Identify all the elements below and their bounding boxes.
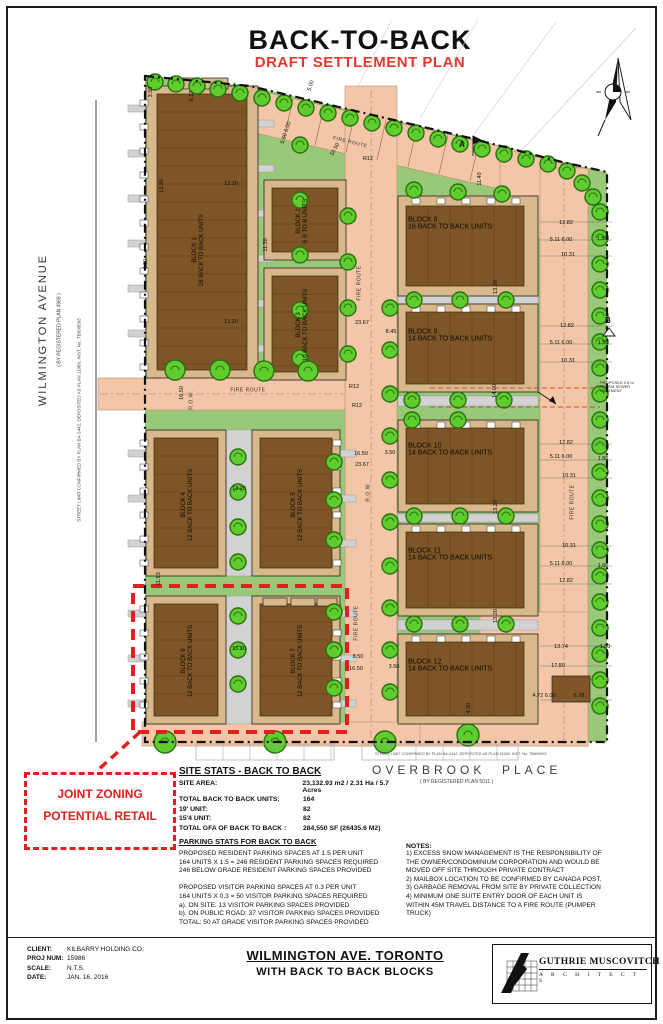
tree-icon <box>340 346 356 362</box>
notes-line: 3) GARBAGE REMOVAL FROM SITE BY PRIVATE … <box>406 884 652 893</box>
dimension-label: 10.31 <box>562 544 576 550</box>
tree-icon <box>230 676 246 692</box>
building-block-9 <box>398 304 538 392</box>
parking-stats-line: PROPOSED VISITOR PARKING SPACES AT 0.3 P… <box>179 884 409 893</box>
tree-icon <box>592 568 608 584</box>
north-arrow-icon <box>596 58 631 136</box>
block-label-7: BLOCK 712 BACK TO BACK UNITS <box>291 625 305 697</box>
architect-firm-sub: A R C H I T E C T S <box>539 972 647 984</box>
tree-icon <box>326 604 342 620</box>
dimension-label: 16.50 <box>349 667 363 673</box>
dimension-label: 11.93 <box>157 572 163 585</box>
tree-icon <box>382 684 398 700</box>
tree-icon <box>452 616 468 632</box>
drawing-sheet: BACK-TO-BACK DRAFT SETTLEMENT PLAN <box>0 0 663 1024</box>
tree-icon <box>452 508 468 524</box>
section-marker-a-label: A <box>459 141 465 149</box>
tree-icon <box>386 120 402 136</box>
dimension-label: 10.31 <box>561 253 575 259</box>
tree-icon <box>592 412 608 428</box>
dimension-label: 3.50 <box>389 665 400 671</box>
tree-icon <box>320 105 336 121</box>
notes-line: TRUCK) <box>406 910 652 919</box>
dimension-label: 13.20 <box>494 609 500 623</box>
tree-icon <box>592 204 608 220</box>
block-label-8: BLOCK 816 BACK TO BACK UNITS <box>408 217 492 232</box>
drawing-title: WILMINGTON AVE. TORONTO WITH BACK TO BAC… <box>200 948 490 978</box>
tree-icon <box>498 292 514 308</box>
dimension-label: 23.67 <box>355 321 369 327</box>
notes-line: 4) MINIMUM ONE SUITE ENTRY DOOR OF EACH … <box>406 893 652 902</box>
parking-stats-line: 164 UNITS X 1.5 = 246 RESIDENT PARKING S… <box>179 859 409 868</box>
dimension-label: 4.00 <box>144 259 150 270</box>
architect-logo-glyph-icon <box>499 951 539 997</box>
tree-icon <box>382 300 398 316</box>
tree-icon <box>406 292 422 308</box>
site-stats-heading: SITE STATS - BACK TO BACK <box>179 766 409 777</box>
dimension-label: R12 <box>363 157 373 163</box>
dimension-label: 12.82 <box>559 441 573 447</box>
tree-icon <box>592 698 608 714</box>
building-block-11 <box>398 524 538 616</box>
dimension-label: 1.50 <box>598 564 609 570</box>
site-stats-panel: SITE STATS - BACK TO BACK SITE AREA:23,1… <box>179 766 409 927</box>
tree-icon <box>382 514 398 530</box>
dimension-label: R12 <box>349 385 359 391</box>
site-stats-row: TOTAL BACK TO BACK UNITS:164 <box>179 796 409 803</box>
building-block-8 <box>398 196 538 296</box>
tree-icon <box>406 182 422 198</box>
parking-stats-line: b). ON PUBLIC ROAD: 37 VISITOR PARKING S… <box>179 910 409 919</box>
parking-stats-line: PROPOSED RESIDENT PARKING SPACES AT 1.5 … <box>179 850 409 859</box>
tree-icon <box>574 175 590 191</box>
tree-icon <box>254 361 274 381</box>
block-label-2: BLOCK 26 B TO B UNITS <box>296 199 310 243</box>
dimension-label: 1.50 <box>598 457 609 463</box>
tree-icon <box>496 146 512 162</box>
tree-icon <box>592 594 608 610</box>
dimension-label: 13.20 <box>494 500 500 514</box>
tree-icon <box>452 292 468 308</box>
dimension-label: 4.72 6.00 <box>533 694 556 700</box>
tree-icon <box>592 490 608 506</box>
tree-icon <box>592 256 608 272</box>
dimension-label: 5.11 6.00 <box>550 455 573 461</box>
tree-icon <box>592 464 608 480</box>
overbrook-plan-ref: ( BY REGISTERED PLAN 5011 ) <box>420 780 493 785</box>
tree-icon <box>592 360 608 376</box>
client-value: KILBARRY HOLDING CO. <box>67 946 144 953</box>
block-label-1: BLOCK 128 BACK TO BACK UNITS <box>192 214 206 286</box>
dimension-label: 4.50 <box>467 703 473 714</box>
tree-icon <box>326 642 342 658</box>
drawing-title-main: WILMINGTON AVE. TORONTO <box>200 948 490 963</box>
street-name-wilmington: WILMINGTON AVENUE <box>38 254 50 406</box>
date-value: JAN. 16, 2016 <box>67 974 108 981</box>
section-marker-b-label: B <box>605 317 611 325</box>
tree-icon <box>430 131 446 147</box>
dimension-label: 1.50 <box>597 237 608 243</box>
dimension-label: 12.82 <box>560 324 574 330</box>
block-label-9: BLOCK 914 BACK TO BACK UNITS <box>408 329 492 344</box>
dimension-label: 1.50 <box>598 341 609 347</box>
fire-route-label: FIRE ROUTE <box>354 605 359 640</box>
title-block-fields: CLIENT: KILBARRY HOLDING CO. PROJ NUM: 1… <box>27 946 144 984</box>
dimension-label: 13.20 <box>224 320 238 326</box>
tree-icon <box>382 342 398 358</box>
block-label-4: BLOCK 412 BACK TO BACK UNITS <box>181 469 195 541</box>
tree-icon <box>382 472 398 488</box>
dimension-label: 5.11 6.00 <box>550 341 573 347</box>
block-label-10: BLOCK 1014 BACK TO BACK UNITS <box>408 443 492 458</box>
dimension-label: 3.50 <box>149 87 155 98</box>
tree-icon <box>404 392 420 408</box>
block-label-12: BLOCK 1214 BACK TO BACK UNITS <box>408 659 492 674</box>
dimension-label: 5.11 6.00 <box>550 562 573 568</box>
tree-icon <box>498 508 514 524</box>
dimension-label: 13.20 <box>494 280 500 294</box>
block-label-5: BLOCK 512 BACK TO BACK UNITS <box>291 469 305 541</box>
architect-logo: GUTHRIE MUSCOVITCH A R C H I T E C T S <box>492 944 652 1004</box>
joint-zoning-callout: JOINT ZONING POTENTIAL RETAIL <box>24 772 176 850</box>
tree-icon <box>230 554 246 570</box>
tree-icon <box>326 454 342 470</box>
tree-icon <box>592 672 608 688</box>
dimension-label: R12 <box>352 404 362 410</box>
tree-icon <box>292 247 308 263</box>
notes-line: WITHIN 45M TRAVEL DISTANCE TO A FIRE ROU… <box>406 902 652 911</box>
tree-icon <box>592 542 608 558</box>
dimension-label: 12.82 <box>559 221 573 227</box>
tree-icon <box>404 412 420 428</box>
dimension-label: 14.00 <box>493 384 499 398</box>
callout-line-1: JOINT ZONING <box>27 787 173 801</box>
notes-heading: NOTES: <box>406 843 652 850</box>
site-stats-row: 15'4 UNIT:82 <box>179 815 409 822</box>
proj-num-label: PROJ NUM: <box>27 955 67 962</box>
parking-stats-line: TOTAL: 50 AT GRADE VISITOR PARKING SPACE… <box>179 919 409 928</box>
tree-icon <box>498 616 514 632</box>
parking-stats-line <box>179 876 409 885</box>
street-name-place: PLACE <box>502 764 561 777</box>
dimension-label: 8.45 <box>386 330 397 336</box>
tree-icon <box>592 516 608 532</box>
proj-num-value: 15986 <box>67 955 85 962</box>
dimension-label: 13.20 <box>232 487 246 493</box>
tree-icon <box>592 438 608 454</box>
tree-icon <box>382 600 398 616</box>
tree-icon <box>326 680 342 696</box>
tree-icon <box>592 620 608 636</box>
dimension-label: 23.67 <box>355 463 369 469</box>
tree-icon <box>518 151 534 167</box>
architect-firm-name: GUTHRIE MUSCOVITCH <box>539 957 647 970</box>
date-label: DATE: <box>27 974 67 981</box>
notes-line: MOVED OFF SITE THROUGH PRIVATE CONTRACT <box>406 867 652 876</box>
fire-route-label: FIRE ROUTE <box>230 388 265 393</box>
tree-icon <box>342 110 358 126</box>
notes-line: 2) MAILBOX LOCATION TO BE CONFIRMED BY C… <box>406 876 652 885</box>
tree-icon <box>276 95 292 111</box>
dimension-label: 11.38 <box>264 238 270 251</box>
drawing-title-sub: WITH BACK TO BACK BLOCKS <box>200 966 490 978</box>
block-label-3: BLOCK 310 BACK TO BACK UNITS <box>296 289 310 361</box>
site-stats-rows: SITE AREA:23,132.93 m2 / 2.31 Ha / 5.7 A… <box>179 780 409 832</box>
tree-icon <box>585 189 601 205</box>
tree-icon <box>165 360 185 380</box>
tree-icon <box>406 508 422 524</box>
tree-icon <box>230 608 246 624</box>
client-label: CLIENT: <box>27 946 67 953</box>
tree-icon <box>450 184 466 200</box>
dimension-label: 1.50 <box>600 645 611 651</box>
parking-stats-line: a). ON SITE: 13 VISITOR PARKING SPACES P… <box>179 902 409 911</box>
tree-icon <box>254 90 270 106</box>
wilmington-street-limit: STREET LIMIT CONFIRMED BY PLAN BA-2442, … <box>78 318 83 521</box>
title-block-divider <box>8 937 655 938</box>
tree-icon <box>450 412 466 428</box>
overbrook-street-limit: STREET LIMIT CONFIRMED BY PLAN BA-2442, … <box>375 752 547 756</box>
dimension-label: 6.78 <box>574 694 585 700</box>
tree-icon <box>340 208 356 224</box>
tree-icon <box>340 254 356 270</box>
dimension-label: 12.82 <box>559 579 573 585</box>
tree-icon <box>382 386 398 402</box>
wilmington-plan-ref: ( BY REGISTERED PLAN 4969 ) <box>57 293 62 367</box>
easement-note: PROPOSED 0.5 m STORM SEWER EASEMENT <box>600 381 634 394</box>
building-block-10 <box>398 420 538 512</box>
callout-line-2: POTENTIAL RETAIL <box>27 809 173 823</box>
fire-route-label: FIRE ROUTE <box>357 265 362 300</box>
notes-panel: NOTES: 1) EXCESS SNOW MANAGEMENT IS THE … <box>406 843 652 919</box>
site-stats-row: 19' UNIT:82 <box>179 806 409 813</box>
tree-icon <box>406 616 422 632</box>
tree-icon <box>292 137 308 153</box>
tree-icon <box>450 392 466 408</box>
dimension-label: 10.31 <box>562 474 576 480</box>
dimension-label: 16.50 <box>354 452 368 458</box>
scale-label: SCALE: <box>27 965 67 972</box>
dimension-label: 8.50 <box>353 655 364 661</box>
tree-icon <box>326 492 342 508</box>
tree-icon <box>298 100 314 116</box>
block-label-11: BLOCK 1114 BACK TO BACK UNITS <box>408 548 492 563</box>
site-stats-row: SITE AREA:23,132.93 m2 / 2.31 Ha / 5.7 A… <box>179 780 409 794</box>
tree-icon <box>494 186 510 202</box>
tree-icon <box>298 361 318 381</box>
row-label: R.O.W. <box>366 482 371 501</box>
notes-line: THE OWNER/CONDOMINIUM CORPORATION AND WO… <box>406 859 652 868</box>
site-stats-row: TOTAL GFA OF BACK TO BACK :284,550 SF (2… <box>179 825 409 832</box>
parking-stats-heading: PARKING STATS FOR BACK TO BACK <box>179 837 409 846</box>
dimension-label: 5.11 6.00 <box>550 238 573 244</box>
dimension-label: 13.20 <box>224 182 238 188</box>
tree-icon <box>326 532 342 548</box>
scale-value: N.T.S. <box>67 965 85 972</box>
dimension-label: 6.17 <box>190 91 196 102</box>
tree-icon <box>230 449 246 465</box>
tree-icon <box>592 282 608 298</box>
dimension-label: 11.40 <box>478 172 484 185</box>
tree-icon <box>382 642 398 658</box>
dimension-label: 17.50 <box>551 664 565 670</box>
parking-stats-lines: PROPOSED RESIDENT PARKING SPACES AT 1.5 … <box>179 850 409 927</box>
tree-icon <box>364 115 380 131</box>
fire-route-label: FIRE ROUTE <box>570 484 575 519</box>
dimension-label: 13.20 <box>232 647 246 653</box>
tree-icon <box>382 428 398 444</box>
notes-line: 1) EXCESS SNOW MANAGEMENT IS THE RESPONS… <box>406 850 652 859</box>
dimension-label: 3.50 <box>385 451 396 457</box>
dimension-label: 13.30 <box>160 179 166 193</box>
notes-lines: 1) EXCESS SNOW MANAGEMENT IS THE RESPONS… <box>406 850 652 919</box>
parking-stats-line: 246 BELOW GRADE RESIDENT PARKING SPACES … <box>179 867 409 876</box>
parking-stats-line: 164 UNITS X 0.3 = 50 VISITOR PARKING SPA… <box>179 893 409 902</box>
dimension-label: 13.74 <box>554 645 568 651</box>
row-label: R.O.W. <box>189 390 194 409</box>
dimension-label: 10.31 <box>561 359 575 365</box>
tree-icon <box>210 360 230 380</box>
block-label-6: BLOCK 612 BACK TO BACK UNITS <box>181 625 195 697</box>
tree-icon <box>408 125 424 141</box>
tree-icon <box>382 558 398 574</box>
tree-icon <box>340 300 356 316</box>
tree-icon <box>230 519 246 535</box>
dimension-label: 16.50 <box>180 386 186 400</box>
tree-icon <box>232 85 248 101</box>
